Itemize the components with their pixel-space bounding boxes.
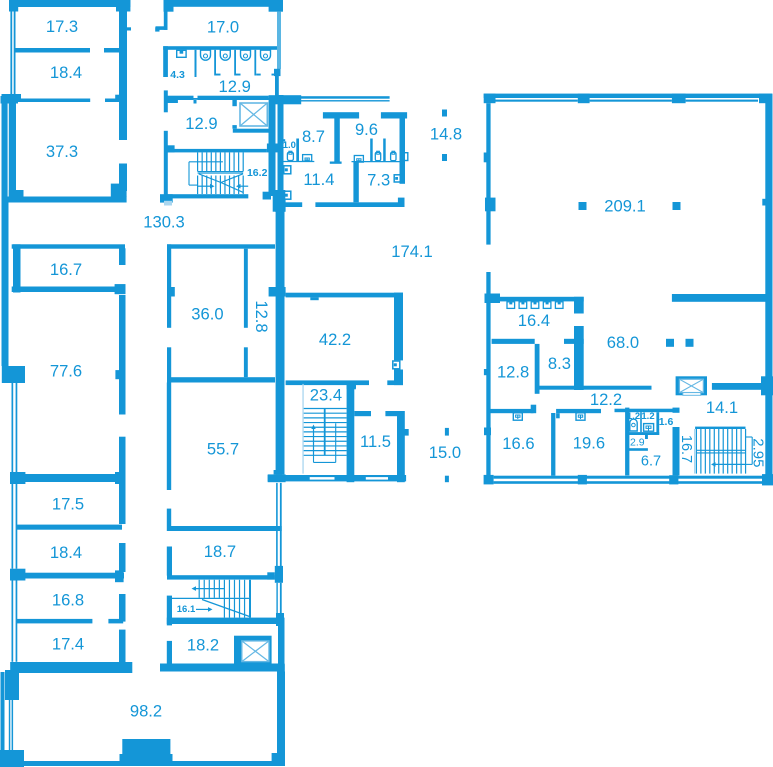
svg-text:16.4: 16.4 (518, 311, 550, 330)
svg-text:42.2: 42.2 (319, 330, 351, 349)
svg-text:16.7: 16.7 (678, 435, 694, 463)
svg-text:12.9: 12.9 (185, 114, 217, 133)
svg-text:4.3: 4.3 (170, 69, 185, 81)
svg-text:1.0: 1.0 (283, 140, 296, 151)
svg-text:14.8: 14.8 (430, 125, 462, 144)
svg-text:130.3: 130.3 (143, 213, 185, 232)
svg-text:6.7: 6.7 (641, 454, 661, 470)
svg-text:68.0: 68.0 (607, 333, 639, 352)
svg-text:55.7: 55.7 (207, 440, 239, 459)
svg-text:16.7: 16.7 (50, 260, 82, 279)
svg-text:11.4: 11.4 (303, 170, 334, 189)
svg-text:15.0: 15.0 (429, 443, 461, 462)
svg-text:18.7: 18.7 (204, 542, 236, 561)
svg-text:19.6: 19.6 (573, 434, 605, 453)
svg-text:12.2: 12.2 (590, 390, 622, 409)
svg-text:1.6: 1.6 (659, 416, 674, 428)
svg-text:7.3: 7.3 (367, 171, 390, 190)
svg-text:16.6: 16.6 (502, 434, 534, 453)
svg-text:77.6: 77.6 (50, 362, 82, 381)
svg-text:16.8: 16.8 (52, 591, 84, 610)
svg-text:98.2: 98.2 (130, 702, 162, 721)
svg-text:2.95: 2.95 (749, 438, 766, 467)
svg-text:209.1: 209.1 (604, 197, 646, 216)
svg-text:1.2: 1.2 (641, 411, 654, 422)
svg-text:12.8: 12.8 (252, 300, 271, 332)
svg-text:18.4: 18.4 (50, 63, 82, 82)
svg-text:23.4: 23.4 (310, 386, 342, 405)
svg-text:36.0: 36.0 (191, 305, 223, 324)
svg-text:16.2: 16.2 (247, 167, 268, 179)
svg-text:14.1: 14.1 (706, 398, 738, 417)
svg-text:9.6: 9.6 (355, 120, 378, 139)
svg-text:8.7: 8.7 (302, 127, 325, 146)
svg-text:18.2: 18.2 (187, 636, 219, 655)
svg-text:11.5: 11.5 (360, 432, 391, 451)
svg-text:16.1: 16.1 (177, 604, 196, 615)
svg-text:2.9: 2.9 (630, 437, 645, 449)
svg-text:12.9: 12.9 (219, 77, 251, 96)
svg-text:17.5: 17.5 (52, 495, 84, 514)
svg-text:17.4: 17.4 (52, 635, 84, 654)
svg-text:17.0: 17.0 (207, 18, 239, 37)
svg-text:37.3: 37.3 (46, 142, 78, 161)
svg-text:8.3: 8.3 (548, 354, 571, 373)
svg-text:12.8: 12.8 (497, 363, 529, 382)
svg-text:17.3: 17.3 (46, 17, 78, 36)
svg-text:174.1: 174.1 (391, 242, 433, 261)
svg-text:1.2: 1.2 (627, 411, 640, 422)
svg-text:18.4: 18.4 (50, 543, 82, 562)
